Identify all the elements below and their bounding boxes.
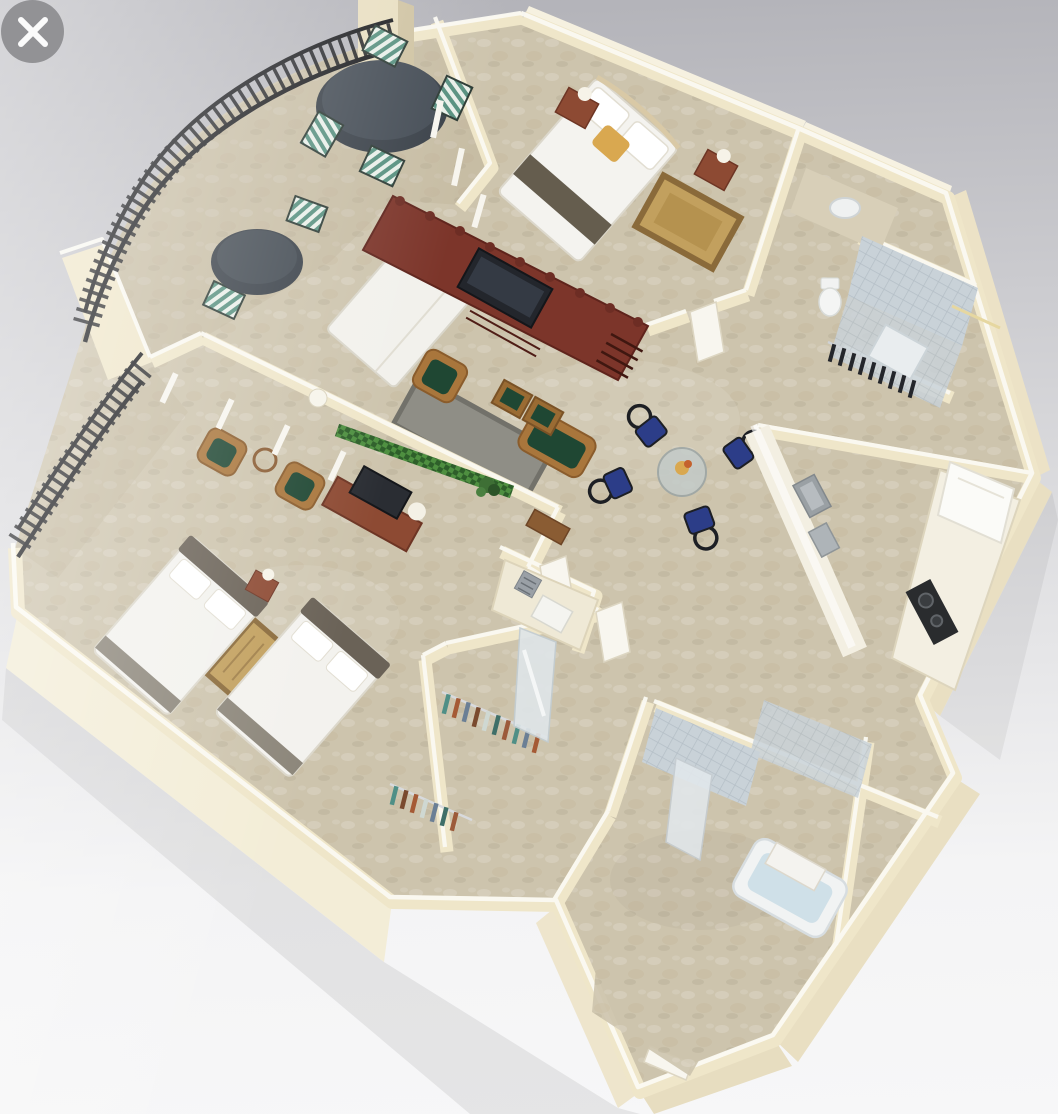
floorplan-render — [0, 0, 1058, 1114]
image-viewer — [0, 0, 1058, 1114]
sink — [830, 198, 860, 218]
toilet — [819, 278, 841, 316]
close-button[interactable] — [1, 0, 64, 63]
close-icon — [16, 15, 50, 49]
table-lamp — [309, 389, 327, 407]
